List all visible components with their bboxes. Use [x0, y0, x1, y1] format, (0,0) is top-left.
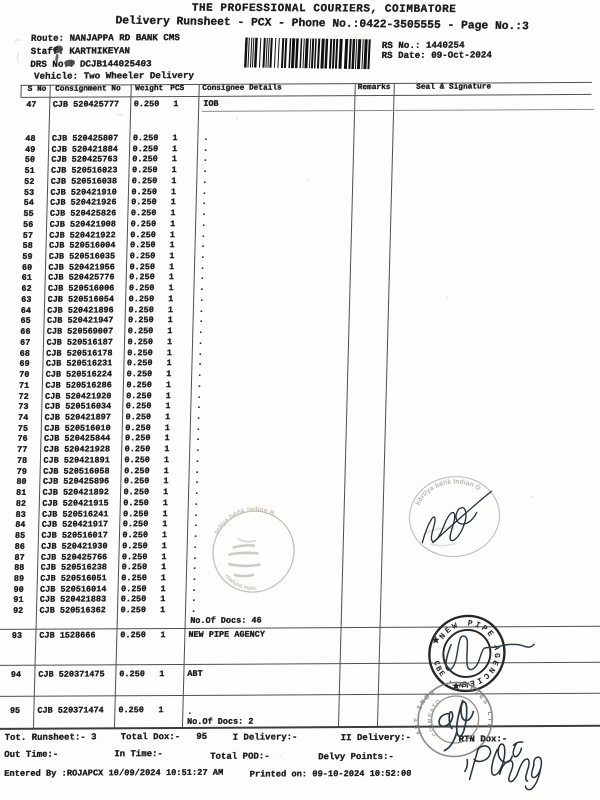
svg-text:ārītya bēňk Indian B: ārītya bēňk Indian B — [213, 506, 275, 536]
svg-text:ABT INDUS: ABT INDUS — [0, 0, 456, 738]
svg-text:kōrtīya bēňk Indian O: kōrtīya bēňk Indian O — [414, 478, 481, 506]
svg-text:COIMBATORE: COIMBATORE — [0, 0, 461, 739]
svg-text:CBE · RT: CBE · RT — [430, 660, 472, 691]
svg-text:RIES LTD: RIES LTD — [467, 686, 495, 731]
